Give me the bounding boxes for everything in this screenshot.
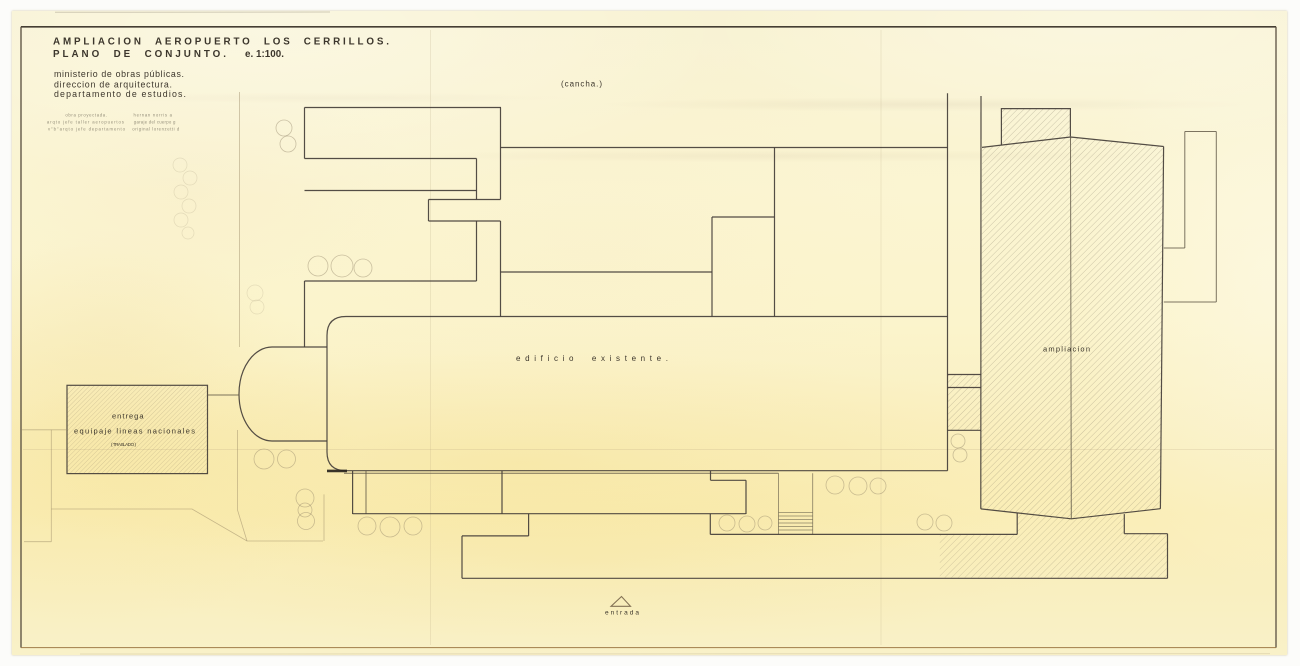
svg-text:direccion de arquitectura.: direccion de arquitectura. [54,80,172,90]
svg-text:garaje del cuerpo g: garaje del cuerpo g [134,119,176,124]
svg-text:PLANO DE CONJUNTO.: PLANO DE CONJUNTO. [53,49,226,60]
svg-text:(cancha.): (cancha.) [561,79,602,88]
svg-text:( TRASLADO ): ( TRASLADO ) [111,442,136,447]
svg-text:original lorenzetti d: original lorenzetti d [132,126,180,131]
svg-text:departamento de estudios.: departamento de estudios. [54,89,186,99]
svg-text:e. 1:100.: e. 1:100. [245,49,284,60]
svg-text:hernan norris a: hernan norris a [134,112,173,117]
svg-text:entrada: entrada [605,610,639,617]
svg-text:AMPLIACION AEROPUERTO LOS C: AMPLIACION AEROPUERTO LOS CERRILLOS. [53,37,389,48]
svg-text:obra proyectada.: obra proyectada. [65,112,107,117]
svg-text:edificio existente.: edificio existente. [516,354,668,363]
svg-text:ministerio de obras públicas.: ministerio de obras públicas. [54,69,184,79]
svg-text:v°b°arqto jefe departamento: v°b°arqto jefe departamento [48,126,126,131]
svg-text:ampliacion: ampliacion [1043,345,1090,354]
svg-text:entrega: entrega [112,411,144,420]
svg-text:arqto jefe taller aeropuert: arqto jefe taller aeropuertos [47,119,124,124]
